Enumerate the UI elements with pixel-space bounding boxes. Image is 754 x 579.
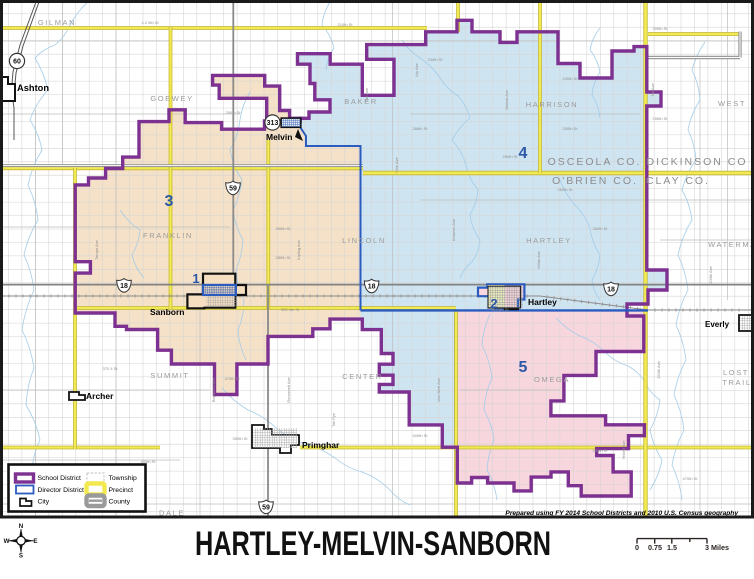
svg-text:3 Miles: 3 Miles (705, 543, 729, 552)
svg-text:S: S (19, 553, 23, 560)
svg-text:Ashton: Ashton (17, 83, 49, 93)
svg-text:380th St: 380th St (593, 448, 609, 453)
svg-text:240th St: 240th St (563, 76, 579, 81)
svg-text:300th St: 300th St (653, 26, 669, 31)
svg-text:280th St: 280th St (593, 226, 609, 231)
svg-text:4 2 0th St: 4 2 0th St (141, 20, 159, 25)
svg-text:230th St: 230th St (428, 57, 444, 62)
svg-text:59: 59 (229, 186, 237, 193)
svg-text:370 4 St: 370 4 St (103, 366, 119, 371)
svg-text:Primghar: Primghar (302, 440, 340, 450)
svg-text:210th St: 210th St (338, 22, 354, 27)
svg-text:Tall Ave: Tall Ave (650, 82, 655, 96)
svg-text:Precinct: Precinct (109, 487, 134, 494)
svg-text:280th St: 280th St (276, 255, 292, 260)
svg-text:BAKER: BAKER (344, 97, 377, 106)
svg-text:Township: Township (109, 475, 138, 482)
svg-text:O'BRIEN CO.: O'BRIEN CO. (552, 175, 638, 187)
svg-text:E: E (33, 538, 37, 545)
svg-text:18: 18 (120, 283, 128, 290)
svg-text:W: W (4, 538, 10, 545)
svg-text:Roosevelt Ave: Roosevelt Ave (286, 376, 291, 402)
svg-text:Walnut Ave: Walnut Ave (504, 89, 509, 110)
svg-text:1: 1 (192, 271, 199, 286)
svg-text:N: N (19, 523, 24, 530)
svg-text:HARTLEY: HARTLEY (526, 236, 572, 245)
svg-text:313: 313 (267, 120, 279, 127)
svg-text:Archer: Archer (86, 391, 114, 401)
svg-text:3: 3 (165, 193, 174, 210)
svg-text:390th St: 390th St (233, 436, 249, 441)
svg-text:1.5: 1.5 (667, 543, 677, 552)
svg-text:Amazon Ave: Amazon Ave (451, 218, 456, 241)
svg-text:Lily Ave: Lily Ave (414, 62, 419, 76)
svg-text:FRANKLIN: FRANKLIN (143, 231, 193, 240)
svg-text:100th Ave: 100th Ave (708, 265, 713, 283)
svg-text:Vine Ave: Vine Ave (394, 156, 399, 172)
svg-text:4: 4 (519, 145, 528, 162)
svg-text:School District: School District (38, 475, 82, 482)
svg-text:150th Ave: 150th Ave (656, 360, 661, 378)
svg-text:Raymond Ave: Raymond Ave (211, 377, 216, 403)
svg-text:Melvin: Melvin (266, 132, 292, 142)
svg-text:18: 18 (607, 287, 615, 294)
svg-text:County: County (109, 499, 131, 506)
svg-text:HARRISON: HARRISON (526, 100, 578, 109)
svg-text:260th St: 260th St (276, 226, 292, 231)
svg-text:TRAIL: TRAIL (722, 378, 751, 387)
svg-text:CLAY CO.: CLAY CO. (646, 175, 710, 187)
svg-text:Kipling Ave: Kipling Ave (296, 239, 301, 259)
svg-text:59: 59 (262, 505, 270, 512)
svg-text:250th St: 250th St (563, 126, 579, 131)
svg-text:SUMMIT: SUMMIT (150, 371, 189, 380)
svg-text:0: 0 (635, 543, 639, 552)
svg-text:Wilda Ave: Wilda Ave (536, 250, 541, 268)
svg-text:HARTLEY-MELVIN-SANBORN: HARTLEY-MELVIN-SANBORN (195, 525, 551, 563)
svg-text:LOST: LOST (723, 368, 749, 377)
svg-text:268th St: 268th St (413, 126, 429, 131)
svg-text:400th St: 400th St (413, 433, 429, 438)
svg-text:Tampa Ave: Tampa Ave (94, 239, 99, 259)
svg-text:Tall Pye: Tall Pye (331, 412, 336, 427)
svg-text:370th St: 370th St (225, 376, 241, 381)
svg-text:OSCEOLA CO.: OSCEOLA CO. (548, 156, 642, 168)
svg-text:260th St: 260th St (558, 187, 574, 192)
svg-text:18: 18 (368, 284, 376, 291)
svg-text:250th St: 250th St (503, 154, 519, 159)
svg-text:Director District: Director District (38, 487, 85, 494)
svg-text:WEST: WEST (718, 99, 746, 108)
svg-text:0.75: 0.75 (648, 543, 662, 552)
svg-text:60: 60 (13, 59, 21, 66)
svg-text:City: City (38, 499, 50, 506)
svg-text:WATERMAN: WATERMAN (708, 240, 754, 249)
svg-text:GOEWEY: GOEWEY (150, 94, 193, 103)
svg-text:Sanborn: Sanborn (150, 307, 184, 317)
svg-text:Hartley: Hartley (528, 297, 557, 307)
svg-text:5: 5 (519, 359, 528, 376)
svg-text:Van Wert Ave: Van Wert Ave (436, 377, 441, 402)
svg-text:LINCOLN: LINCOLN (342, 236, 386, 245)
svg-text:470th St: 470th St (683, 476, 699, 481)
svg-text:OMEGA: OMEGA (534, 375, 570, 384)
svg-text:250th St: 250th St (653, 116, 669, 121)
svg-text:DICKINSON CO: DICKINSON CO (646, 156, 747, 168)
svg-text:GILMAN: GILMAN (38, 18, 76, 27)
svg-text:250th St: 250th St (226, 110, 242, 115)
svg-text:Yellow Ave: Yellow Ave (621, 440, 626, 460)
svg-text:CENTER: CENTER (342, 372, 382, 381)
svg-text:300 4th St: 300 4th St (281, 307, 300, 312)
svg-text:2: 2 (490, 296, 497, 311)
svg-text:Everly: Everly (705, 320, 730, 329)
